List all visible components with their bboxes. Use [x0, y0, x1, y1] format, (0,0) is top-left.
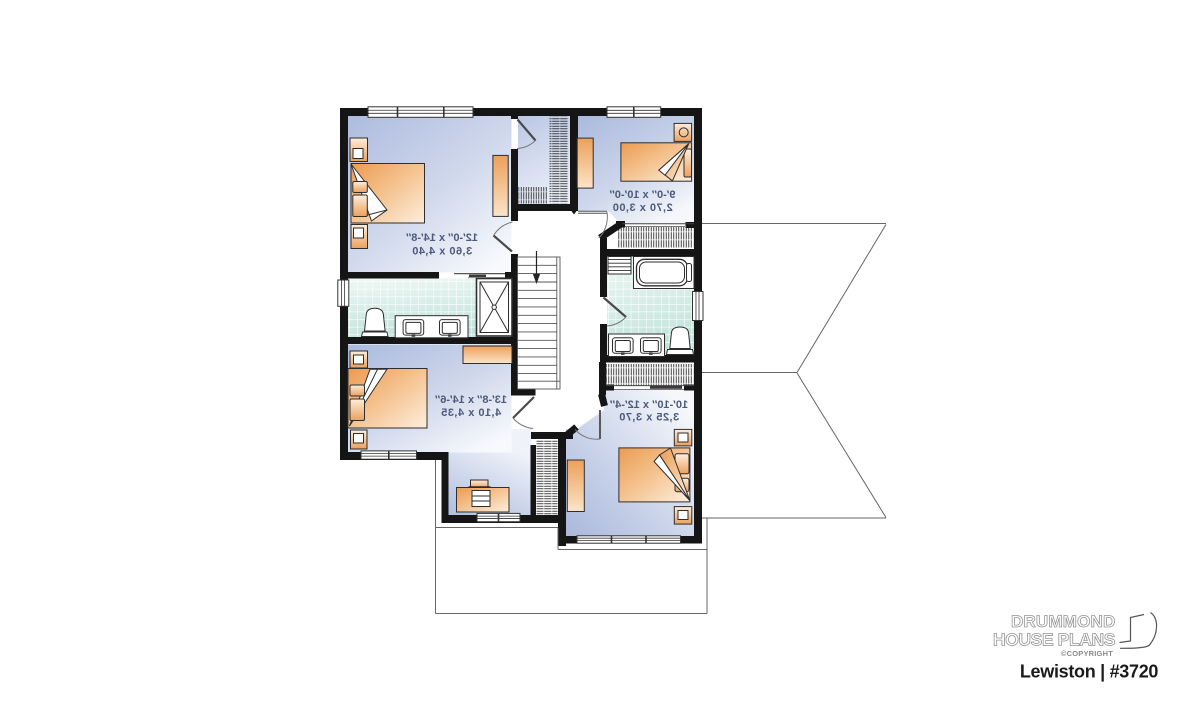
svg-text:10′-10″ x 12′-4″: 10′-10″ x 12′-4″: [609, 399, 688, 411]
svg-text:2,70 x 3,00: 2,70 x 3,00: [612, 202, 673, 214]
svg-text:3,25 x 3,70: 3,25 x 3,70: [619, 412, 680, 424]
svg-text:4,10 x 4,35: 4,10 x 4,35: [441, 407, 502, 419]
svg-text:13′-8″ x 14′-6″: 13′-8″ x 14′-6″: [434, 394, 507, 406]
svg-text:©COPYRIGHT: ©COPYRIGHT: [1061, 649, 1113, 658]
svg-text:DRUMMOND: DRUMMOND: [1011, 612, 1116, 631]
svg-text:12′-0″ x 14′-8″: 12′-0″ x 14′-8″: [405, 232, 478, 244]
svg-text:Lewiston | #3720: Lewiston | #3720: [1020, 662, 1159, 682]
svg-text:3,60 x 4,40: 3,60 x 4,40: [412, 246, 473, 258]
svg-text:9′-0″ x 10′-0″: 9′-0″ x 10′-0″: [609, 189, 676, 201]
svg-text:HOUSE PLANS: HOUSE PLANS: [993, 630, 1115, 650]
